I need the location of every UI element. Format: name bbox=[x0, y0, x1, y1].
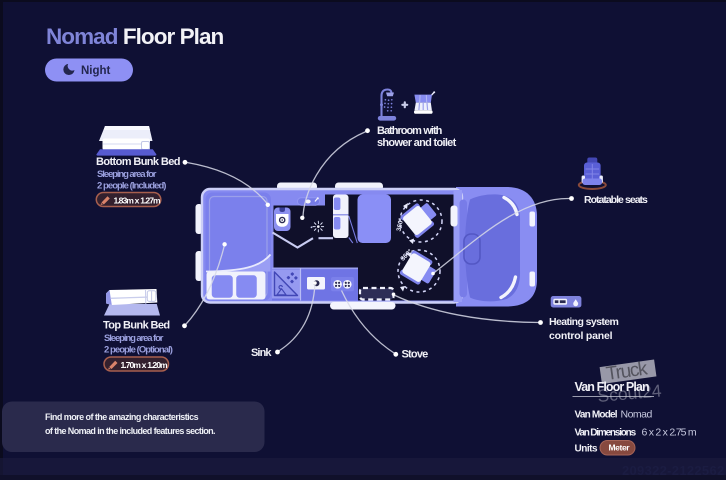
svg-text:Rotatableseats: Rotatableseats bbox=[584, 194, 648, 206]
svg-text:Units: Units bbox=[575, 444, 598, 455]
svg-text:Sleeping area for: Sleeping area for bbox=[104, 333, 164, 344]
svg-text:Stove: Stove bbox=[402, 349, 429, 361]
svg-text:Nomad: Nomad bbox=[621, 409, 653, 421]
svg-text:2 people (Optional): 2 people (Optional) bbox=[104, 345, 173, 356]
svg-text:1.83mx1.27m: 1.83mx1.27m bbox=[114, 195, 161, 205]
svg-text:Van Dimensions: Van Dimensions bbox=[575, 428, 637, 439]
svg-text:Van Floor Plan: Van Floor Plan bbox=[575, 380, 649, 394]
svg-text:Find more of the amazing chara: Find more of the amazing characteristics bbox=[45, 412, 199, 422]
svg-text:Nomad Floor Plan: Nomad Floor Plan bbox=[46, 24, 224, 49]
svg-text:control panel: control panel bbox=[549, 330, 613, 342]
svg-text:1.70mx1.20m: 1.70mx1.20m bbox=[121, 360, 168, 370]
svg-text:Van Model: Van Model bbox=[575, 410, 618, 421]
svg-text:Meter: Meter bbox=[609, 443, 631, 453]
svg-text:209322-2122562: 209322-2122562 bbox=[622, 463, 725, 478]
svg-text:Sleeping area for: Sleeping area for bbox=[97, 169, 157, 180]
svg-text:6x2x2.75m: 6x2x2.75m bbox=[642, 427, 697, 439]
svg-text:of the Nomad in the included f: of the Nomad in the included features se… bbox=[45, 426, 215, 436]
svg-text:2 people (Included): 2 people (Included) bbox=[97, 181, 166, 192]
svg-text:Night: Night bbox=[81, 65, 111, 77]
svg-text:Top Bunk Bed: Top Bunk Bed bbox=[103, 320, 170, 332]
svg-text:Bottom Bunk Bed: Bottom Bunk Bed bbox=[96, 156, 180, 168]
svg-text:shower and toilet: shower and toilet bbox=[377, 137, 457, 149]
svg-text:Bathroomwith: Bathroomwith bbox=[377, 125, 443, 137]
svg-text:Heating system: Heating system bbox=[549, 316, 618, 328]
svg-text:Sink: Sink bbox=[251, 347, 272, 359]
